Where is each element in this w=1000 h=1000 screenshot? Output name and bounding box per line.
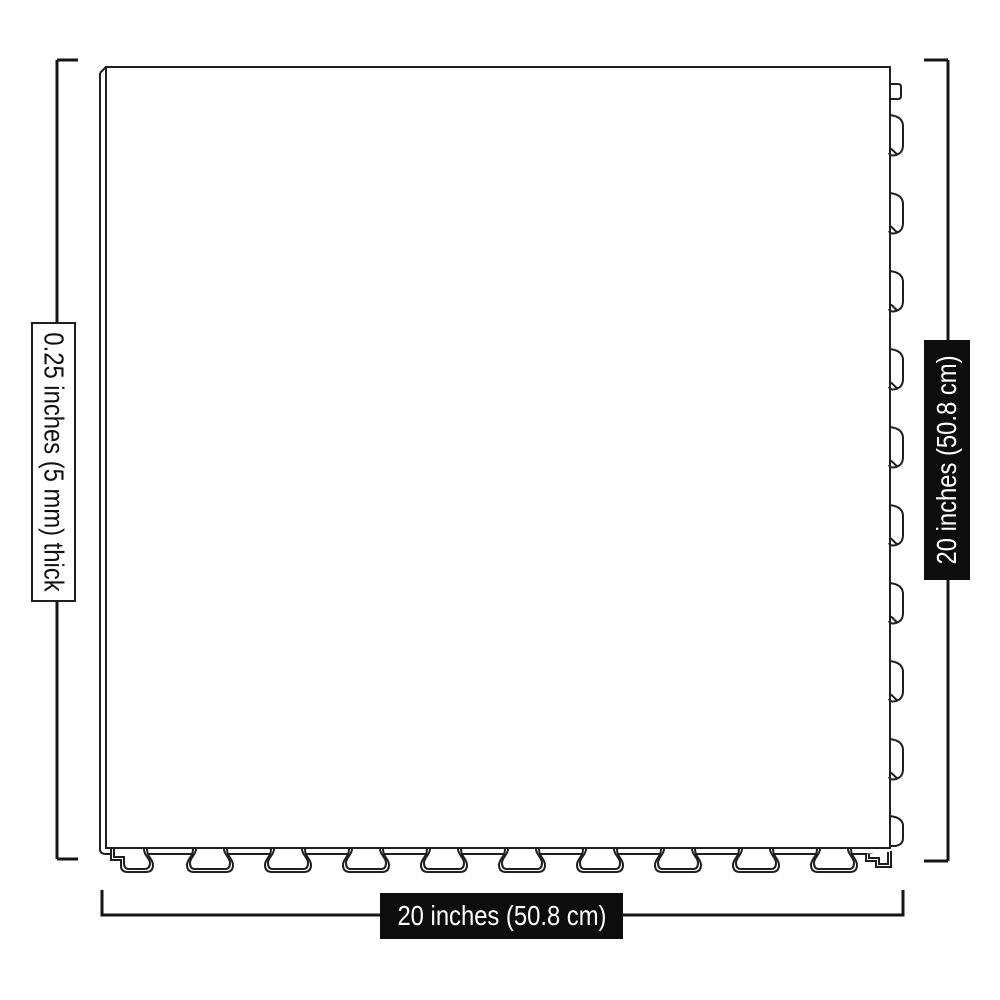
height-label-text: 20 inches (50.8 cm): [931, 355, 963, 564]
tile-dimension-diagram: 0.25 inches (5 mm) thick 20 inches (50.8…: [0, 0, 1000, 1000]
tile-face: [100, 67, 890, 854]
bottom-right-corner-tab: [889, 816, 903, 846]
width-label-text: 20 inches (50.8 cm): [397, 900, 606, 932]
tile-diagram-artwork: [0, 0, 1000, 1000]
right-edge-tabs: [889, 84, 903, 846]
height-dimension-label: 20 inches (50.8 cm): [924, 340, 970, 580]
thickness-label: 0.25 inches (5 mm) thick: [31, 322, 76, 602]
bottom-edge-tabs: [111, 849, 891, 872]
thickness-label-text: 0.25 inches (5 mm) thick: [38, 332, 70, 591]
width-dimension-label: 20 inches (50.8 cm): [380, 893, 623, 939]
